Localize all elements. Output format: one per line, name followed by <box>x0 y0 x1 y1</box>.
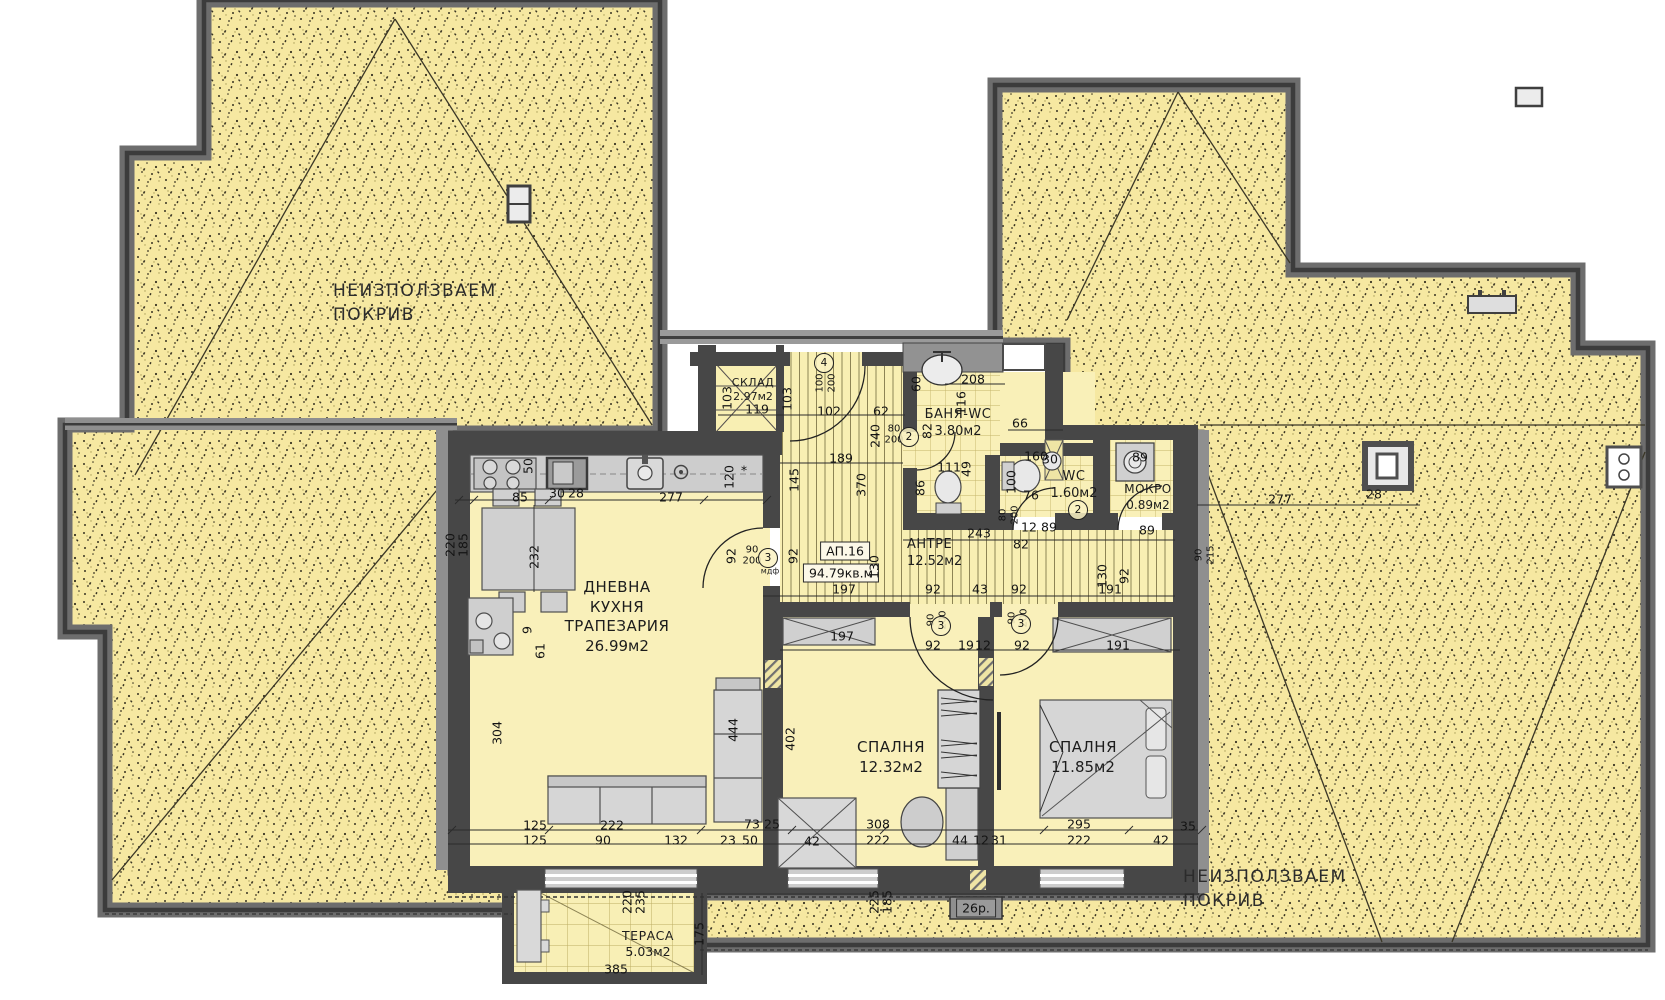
bedroom2-window <box>1040 869 1124 888</box>
desk <box>946 788 978 860</box>
pillow <box>1146 756 1166 798</box>
chair <box>541 592 567 612</box>
burner <box>507 477 519 489</box>
bedroom1-window <box>788 869 878 888</box>
wc-sink <box>1043 452 1061 470</box>
burner <box>483 460 497 474</box>
dining-table <box>482 508 575 590</box>
bath-toilet <box>935 471 961 503</box>
burner <box>506 460 520 474</box>
living-window <box>545 869 697 888</box>
floor-plan-canvas: АП.16 94.79кв.м НЕИЗПОЛЗВАЕМПОКРИВНЕИЗПО… <box>0 0 1665 1000</box>
chimney-bar <box>1468 296 1516 313</box>
note-box-frame <box>950 897 1002 919</box>
chair <box>493 489 519 506</box>
corner-box <box>1516 88 1542 106</box>
shaft-white <box>1003 344 1045 370</box>
chair <box>535 489 561 506</box>
stove <box>474 458 536 489</box>
burner <box>484 477 496 489</box>
plan-drawing <box>0 0 1665 1000</box>
tv-panel <box>997 712 1001 790</box>
sofa-right <box>714 690 762 822</box>
vent-box <box>1607 447 1641 487</box>
desk-chair <box>901 797 943 847</box>
kitchen <box>470 455 763 492</box>
closet-hatched <box>938 690 980 788</box>
